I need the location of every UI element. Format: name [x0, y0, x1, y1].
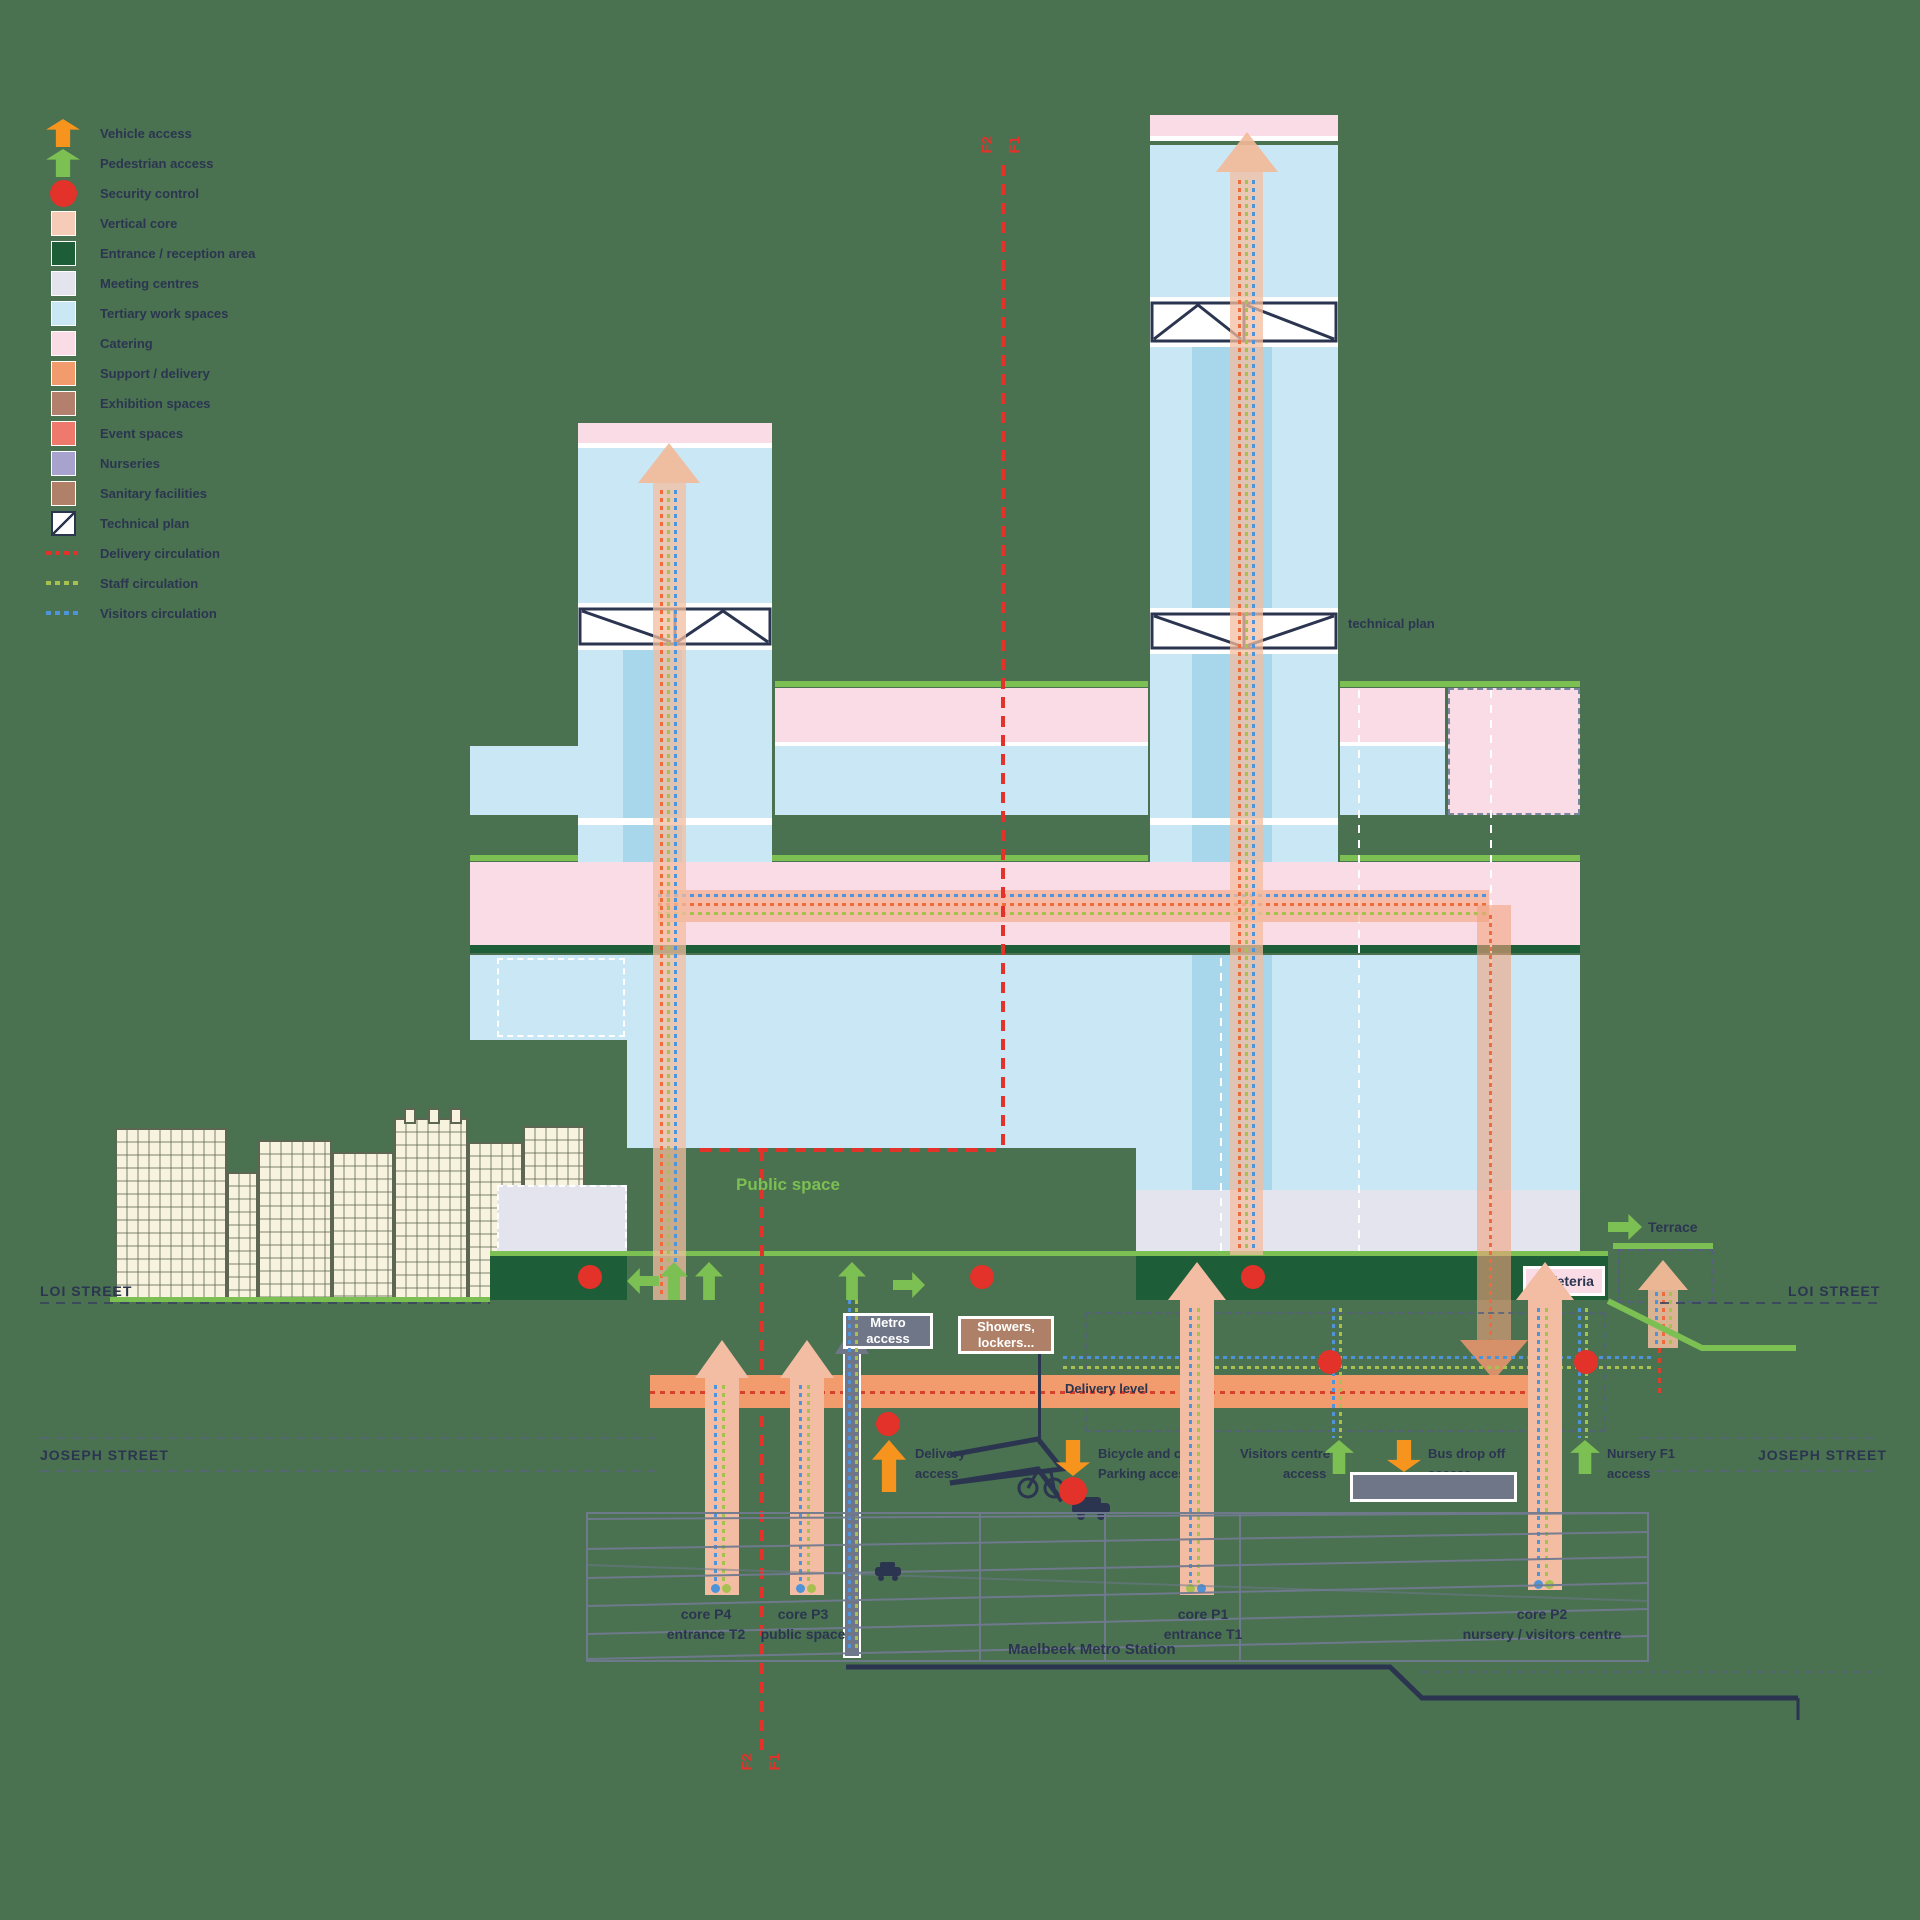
floor-divider [1358, 690, 1360, 1252]
legend-item-label: Support / delivery [100, 366, 210, 381]
metro-station-line [840, 1640, 1890, 1730]
meeting-box-left [497, 1185, 627, 1257]
visitors-centre-label-2: access [1283, 1466, 1326, 1483]
nursery-access-label-1: Nursery F1 [1607, 1446, 1675, 1463]
loi-street-line [40, 1302, 490, 1304]
legend-item: Technical plan [40, 508, 255, 538]
terrace-label: Terrace [1648, 1218, 1698, 1236]
line-red-icon [40, 551, 86, 555]
visitors-circulation-line [1252, 180, 1255, 1250]
bicycle-parking-label-2: Parking access [1098, 1466, 1193, 1483]
terrace-slope-line [1600, 1295, 1800, 1355]
technical-plan-label: technical plan [1348, 616, 1435, 633]
security-control-dot [1241, 1265, 1265, 1289]
security-control-dot [1574, 1350, 1598, 1374]
legend-swatch [40, 481, 86, 506]
joseph-street-line [40, 1437, 655, 1439]
legend-item-label: Visitors circulation [100, 606, 217, 621]
legend-swatch [40, 361, 86, 386]
workspace-centre-block [627, 955, 1136, 1148]
facade-chimney [404, 1108, 416, 1124]
staff-circulation-line [1063, 1366, 1653, 1369]
security-dot-icon [40, 180, 86, 207]
roof-garden-line [775, 681, 1148, 687]
loi-street-line [1660, 1302, 1880, 1304]
legend-item-label: Vehicle access [100, 126, 192, 141]
legend-swatch [40, 451, 86, 476]
staff-circulation-line [658, 912, 1489, 915]
catering-band-upper [775, 688, 1148, 746]
legend-item: Staff circulation [40, 568, 255, 598]
loi-street-label-right: LOI STREET [1788, 1283, 1880, 1299]
security-control-dot [578, 1265, 602, 1289]
delivery-route-down-shaft [1477, 905, 1511, 1340]
joseph-street-line [40, 1470, 655, 1472]
legend-item-label: Catering [100, 336, 153, 351]
nursery-access-label-2: access [1607, 1466, 1650, 1483]
staff-circulation-line [1339, 1308, 1342, 1438]
security-control-dot [1059, 1477, 1087, 1505]
terrace-arrow [1608, 1214, 1642, 1240]
bus-box [1350, 1472, 1517, 1502]
delivery-section-line-top [1001, 165, 1005, 1150]
roof-garden-line-f2 [1340, 855, 1580, 861]
old-building-facade [332, 1152, 394, 1300]
old-building-facade [394, 1118, 468, 1300]
workspace-left-block-outline [497, 958, 625, 1037]
line-blue-icon [40, 611, 86, 615]
reception-stripe [470, 945, 1580, 953]
legend-item: Security control [40, 178, 255, 208]
legend-item: Entrance / reception area [40, 238, 255, 268]
pedestrian-arrow-up [695, 1262, 723, 1300]
security-control-dot [876, 1412, 900, 1436]
delivery-section-line-horizontal [700, 1148, 1003, 1152]
core-p4-label: core P4entrance T2 [667, 1604, 746, 1645]
metro-access-label-1: Metro [870, 1315, 905, 1331]
legend-item-label: Meeting centres [100, 276, 199, 291]
delivery-circulation-line [1238, 180, 1241, 1250]
legend-item-label: Exhibition spaces [100, 396, 211, 411]
joseph-street-line [1640, 1437, 1880, 1439]
parked-car-icon [875, 1562, 901, 1581]
core-p3-arrowhead [780, 1340, 834, 1378]
delivery-access-label-2: access [915, 1466, 958, 1483]
visitors-circulation-line [1063, 1356, 1653, 1359]
legend-item-label: Nurseries [100, 456, 160, 471]
legend-item: Sanitary facilities [40, 478, 255, 508]
delivery-circulation-line [1658, 1348, 1661, 1393]
catering-extension-block [1448, 688, 1580, 815]
legend-item: Event spaces [40, 418, 255, 448]
legend-swatch [40, 271, 86, 296]
basement-zone-outline [1085, 1312, 1605, 1432]
legend-item-label: Event spaces [100, 426, 183, 441]
pedestrian-arrow-nursery [1570, 1440, 1600, 1474]
legend-item: Nurseries [40, 448, 255, 478]
security-control-dot [970, 1265, 994, 1289]
core-p4-arrowhead [695, 1340, 749, 1378]
core-p2-label: core P2nursery / visitors centre [1463, 1604, 1622, 1645]
facade-chimney [450, 1108, 462, 1124]
delivery-circulation-line [1489, 915, 1492, 1340]
legend-item-label: Entrance / reception area [100, 246, 255, 261]
visitors-centre-label-1: Visitors centre [1240, 1446, 1330, 1463]
line-green-icon [40, 581, 86, 585]
pedestrian-arrow-up [838, 1262, 866, 1300]
old-building-facade [115, 1128, 227, 1300]
section-diagram: technical plan F2 F1 F2 F1 Public space … [0, 0, 1920, 1920]
arrow-up-green-icon [40, 149, 86, 177]
joseph-street-label-right: JOSEPH STREET [1758, 1447, 1887, 1463]
staff-circulation-line [1245, 180, 1248, 1250]
legend-item: Delivery circulation [40, 538, 255, 568]
delivery-level-label: Delivery level [1065, 1381, 1148, 1398]
legend-item-label: Technical plan [100, 516, 189, 531]
legend-item-label: Vertical core [100, 216, 177, 231]
catering-band-upper-right [1340, 688, 1445, 746]
section-marker-f2-top: F2 [979, 136, 996, 154]
roof-garden-line-f2 [470, 855, 1148, 861]
legend-swatch [40, 331, 86, 356]
technical-plan-icon [40, 511, 86, 536]
legend-swatch [40, 211, 86, 236]
legend-item: Tertiary work spaces [40, 298, 255, 328]
security-control-dot [1318, 1350, 1342, 1374]
showers-label-2: lockers... [978, 1335, 1034, 1351]
showers-box: Showers, lockers... [958, 1316, 1054, 1354]
staff-circulation-line [667, 490, 670, 1295]
visitors-circulation-line [658, 894, 1489, 897]
legend-item-label: Staff circulation [100, 576, 198, 591]
showers-label-1: Showers, [977, 1319, 1035, 1335]
left-tower-catering-top [578, 423, 772, 448]
legend-item: Support / delivery [40, 358, 255, 388]
legend-swatch [40, 301, 86, 326]
entrance-strip-left [490, 1256, 627, 1300]
delivery-circulation-line [660, 490, 663, 1295]
floor-divider [1220, 958, 1222, 1252]
workspace-left-wing [470, 746, 578, 815]
legend: Vehicle accessPedestrian accessSecurity … [40, 118, 255, 628]
roof-garden-line [1340, 681, 1580, 687]
workspace-band-upper [775, 746, 1148, 815]
vehicle-arrow-bus [1387, 1440, 1421, 1472]
old-building-facade [227, 1172, 258, 1300]
legend-item: Pedestrian access [40, 148, 255, 178]
old-building-facade [258, 1140, 332, 1300]
legend-item: Visitors circulation [40, 598, 255, 628]
legend-item-label: Tertiary work spaces [100, 306, 228, 321]
legend-swatch [40, 241, 86, 266]
legend-item: Vertical core [40, 208, 255, 238]
arrow-up-orange-icon [40, 119, 86, 147]
legend-item: Catering [40, 328, 255, 358]
legend-item-label: Security control [100, 186, 199, 201]
legend-item-label: Pedestrian access [100, 156, 213, 171]
legend-item: Meeting centres [40, 268, 255, 298]
legend-item: Exhibition spaces [40, 388, 255, 418]
public-space-label: Public space [736, 1174, 840, 1196]
pedestrian-arrow-right [893, 1272, 925, 1298]
delivery-circulation-line [658, 903, 1489, 906]
metro-access-label-2: access [866, 1331, 909, 1347]
legend-item-label: Sanitary facilities [100, 486, 207, 501]
legend-swatch [40, 391, 86, 416]
visitors-circulation-line [674, 490, 677, 1295]
facade-chimney [428, 1108, 440, 1124]
core-p1-label: core P1entrance T1 [1164, 1604, 1243, 1645]
section-marker-f1-top: F1 [1006, 136, 1023, 154]
core-p3-label: core P3public space [761, 1604, 846, 1645]
loi-street-label-left: LOI STREET [40, 1283, 132, 1299]
legend-item: Vehicle access [40, 118, 255, 148]
joseph-street-line [1640, 1470, 1880, 1472]
section-marker-f2-bottom: F2 [739, 1753, 756, 1771]
legend-item-label: Delivery circulation [100, 546, 220, 561]
legend-swatch [40, 421, 86, 446]
section-marker-f1-bottom: F1 [766, 1753, 783, 1771]
workspace-band-upper-right [1340, 746, 1445, 815]
joseph-street-label-left: JOSEPH STREET [40, 1447, 169, 1463]
bus-drop-off-label-1: Bus drop off [1428, 1446, 1505, 1463]
delivery-access-label-1: Delivery [915, 1446, 966, 1463]
